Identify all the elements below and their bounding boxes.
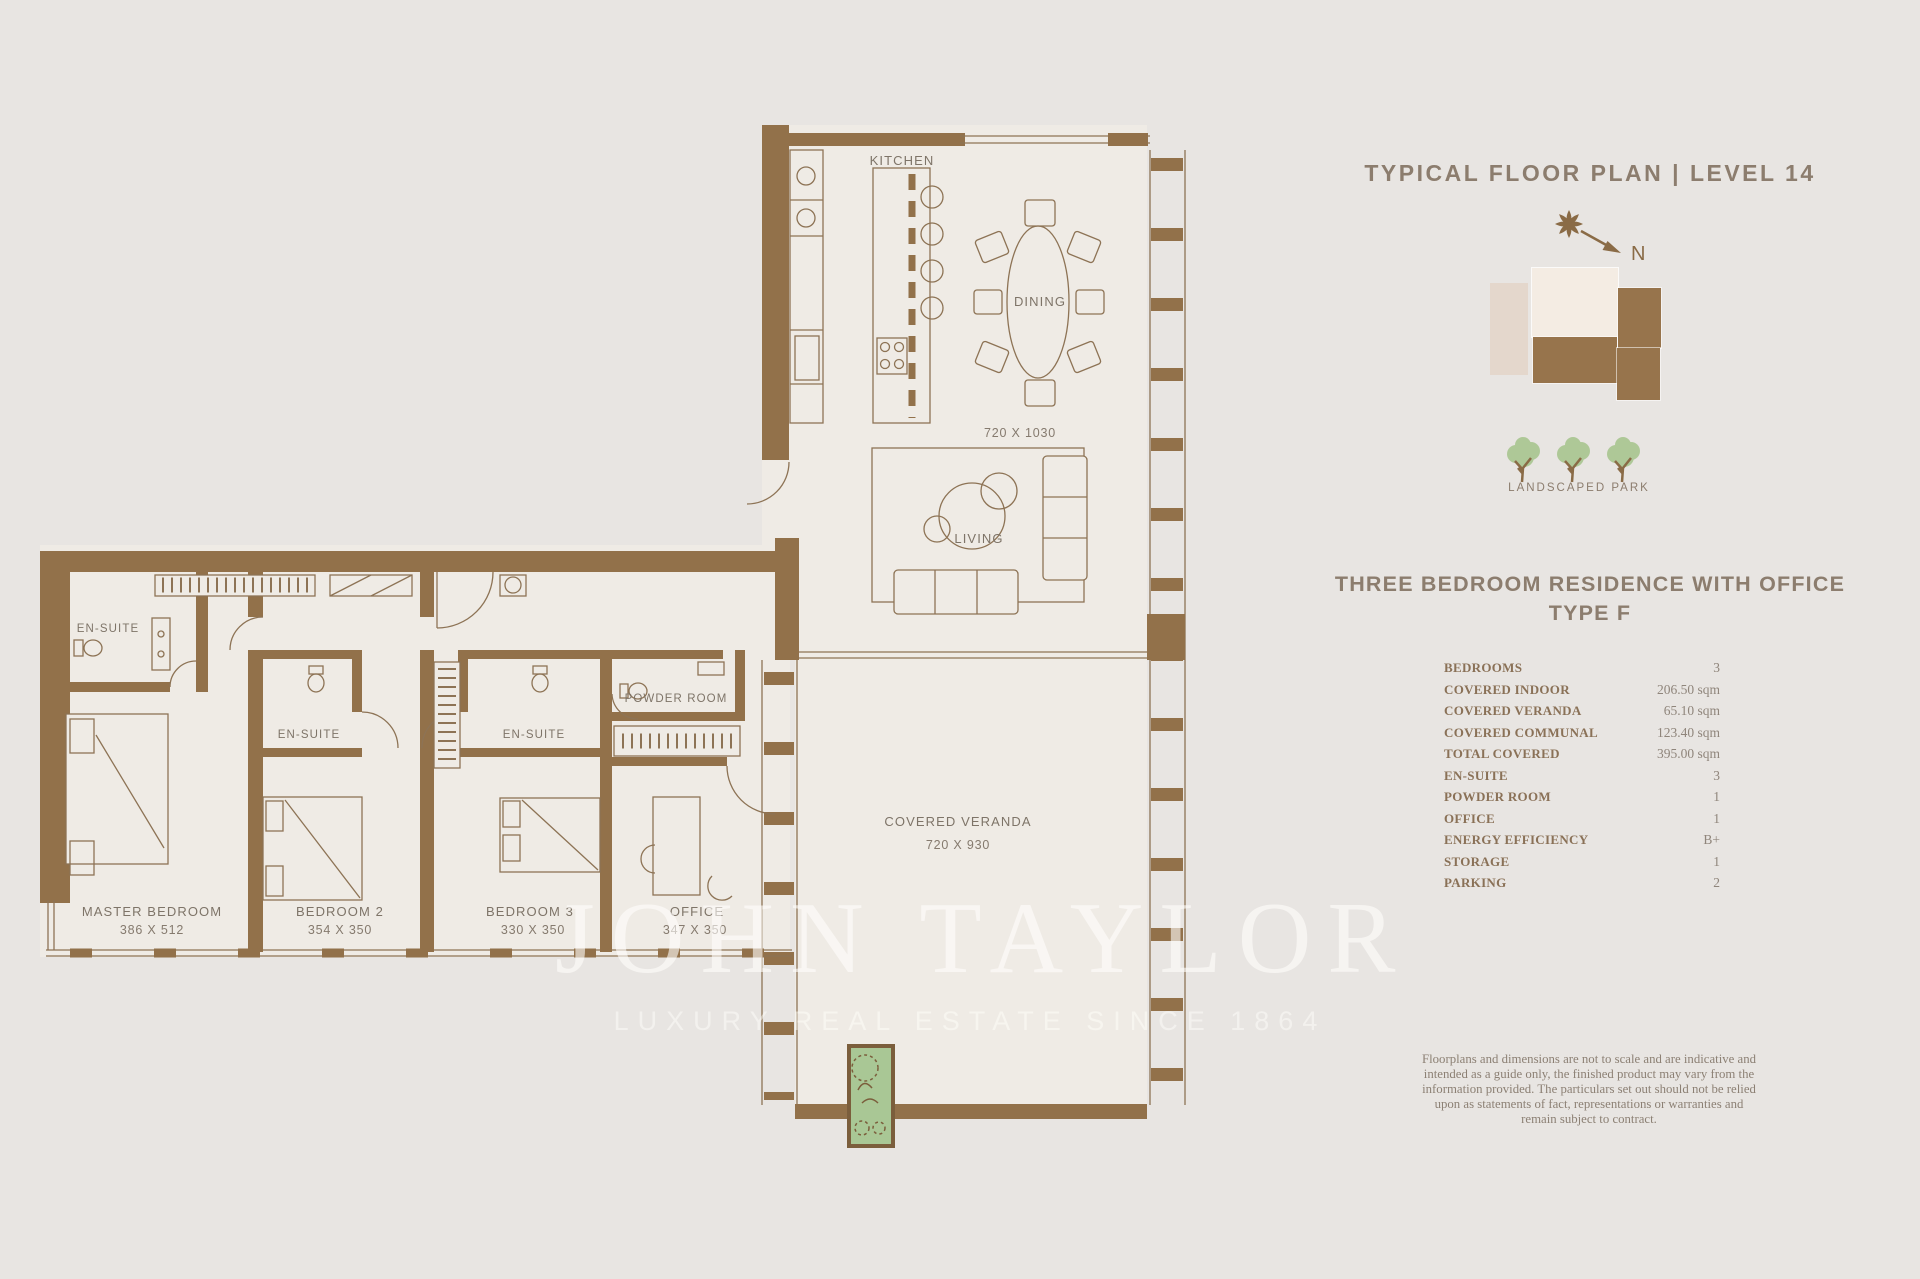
spec-label: BEDROOMS: [1444, 660, 1522, 676]
building-block-highlight: [1533, 337, 1617, 383]
spec-value: 3: [1713, 768, 1720, 784]
tree-icon: [1557, 437, 1590, 482]
veranda-label: COVERED VERANDA: [884, 814, 1031, 829]
residence-title-line2: TYPE F: [1310, 601, 1870, 626]
page-title: TYPICAL FLOOR PLAN | LEVEL 14: [1330, 160, 1850, 187]
spec-label: COVERED COMMUNAL: [1444, 725, 1598, 741]
spec-label: STORAGE: [1444, 854, 1509, 870]
compass-icon: N: [1545, 200, 1685, 270]
sofa: [1043, 456, 1087, 580]
building-block-highlight: [1617, 348, 1660, 400]
north-arrow: [1581, 231, 1608, 246]
residence-title-line1: THREE BEDROOM RESIDENCE WITH OFFICE: [1310, 572, 1870, 597]
spec-value: 206.50 sqm: [1657, 682, 1720, 698]
spec-row: ENERGY EFFICIENCY B+: [1444, 832, 1720, 854]
spec-value: B+: [1703, 832, 1720, 848]
spec-row: COVERED COMMUNAL 123.40 sqm: [1444, 725, 1720, 747]
tree-icon: [1507, 437, 1540, 482]
building-block: [1490, 283, 1528, 375]
spec-value: 3: [1713, 660, 1720, 676]
residence-title: THREE BEDROOM RESIDENCE WITH OFFICE TYPE…: [1310, 572, 1870, 626]
ensuite-label: EN-SUITE: [77, 623, 139, 635]
dining-label: DINING: [1014, 294, 1066, 309]
spec-row: COVERED INDOOR 206.50 sqm: [1444, 682, 1720, 704]
dining-dims: 720 X 1030: [984, 426, 1056, 440]
spec-label: POWDER ROOM: [1444, 789, 1551, 805]
spec-table: BEDROOMS 3 COVERED INDOOR 206.50 sqm COV…: [1444, 660, 1720, 897]
kitchen-island: [873, 168, 930, 423]
veranda-dims: 720 X 930: [926, 838, 990, 852]
bedroom2-dims: 354 X 350: [308, 923, 372, 937]
building-block-highlight: [1618, 288, 1661, 348]
landscaped-park-trees: [1504, 436, 1654, 484]
disclaimer-text: Floorplans and dimensions are not to sca…: [1418, 1052, 1760, 1127]
powder-room-label: POWDER ROOM: [625, 693, 728, 705]
spec-value: 123.40 sqm: [1657, 725, 1720, 741]
closet: [330, 575, 412, 596]
master-bedroom-dims: 386 X 512: [120, 923, 184, 937]
spec-value: 1: [1713, 789, 1720, 805]
spec-label: TOTAL COVERED: [1444, 746, 1560, 762]
kitchen-label: KITCHEN: [870, 153, 935, 168]
office-dims: 347 X 350: [663, 923, 727, 937]
spec-row: TOTAL COVERED 395.00 sqm: [1444, 746, 1720, 768]
bed: [263, 797, 362, 900]
spec-value: 1: [1713, 811, 1720, 827]
bedroom3-dims: 330 X 350: [501, 923, 565, 937]
spec-label: EN-SUITE: [1444, 768, 1508, 784]
master-bedroom-label: MASTER BEDROOM: [82, 904, 222, 919]
spec-label: PARKING: [1444, 875, 1507, 891]
spec-value: 65.10 sqm: [1664, 703, 1720, 719]
ensuite-label: EN-SUITE: [503, 729, 565, 741]
spec-row: EN-SUITE 3: [1444, 768, 1720, 790]
tree-icon: [1607, 437, 1640, 482]
spec-row: POWDER ROOM 1: [1444, 789, 1720, 811]
floorplan-page: KITCHEN DINING 720 X 1030 LIVING COVERED…: [0, 0, 1920, 1279]
spec-row: STORAGE 1: [1444, 854, 1720, 876]
sofa: [894, 570, 1018, 614]
spec-row: COVERED VERANDA 65.10 sqm: [1444, 703, 1720, 725]
spec-label: OFFICE: [1444, 811, 1495, 827]
living-label: LIVING: [954, 531, 1003, 546]
compass-star: [1555, 210, 1583, 238]
spec-label: COVERED INDOOR: [1444, 682, 1570, 698]
ensuite-label: EN-SUITE: [278, 729, 340, 741]
building-block: [1532, 268, 1618, 337]
desk: [653, 797, 700, 895]
building-location-diagram: [1488, 262, 1668, 412]
spec-row: PARKING 2: [1444, 875, 1720, 897]
spec-label: ENERGY EFFICIENCY: [1444, 832, 1588, 848]
spec-value: 2: [1713, 875, 1720, 891]
spec-value: 395.00 sqm: [1657, 746, 1720, 762]
spec-row: BEDROOMS 3: [1444, 660, 1720, 682]
bedroom2-label: BEDROOM 2: [296, 904, 384, 919]
park-label: LANDSCAPED PARK: [1494, 482, 1664, 494]
spec-row: OFFICE 1: [1444, 811, 1720, 833]
office-label: OFFICE: [670, 904, 724, 919]
spec-label: COVERED VERANDA: [1444, 703, 1582, 719]
planter: [849, 1046, 893, 1146]
spec-value: 1: [1713, 854, 1720, 870]
bedroom3-label: BEDROOM 3: [486, 904, 574, 919]
